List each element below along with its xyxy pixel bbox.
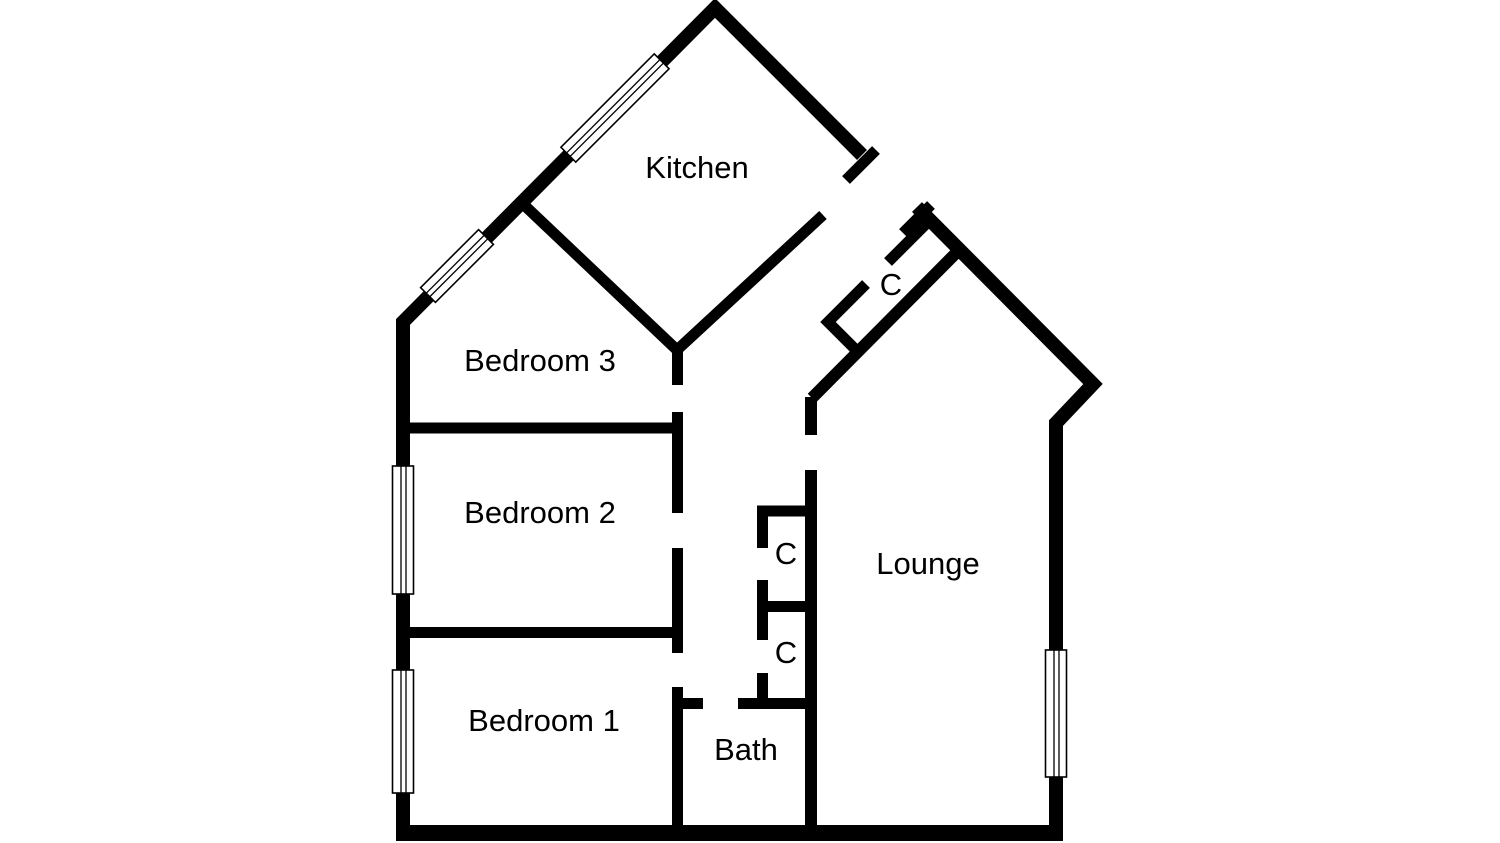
lounge-hall-walls [811,247,962,841]
room-label-lounge: Lounge [876,546,979,581]
room-label-bedroom-2: Bedroom 2 [464,495,616,530]
window-bedroom3-diagonal [421,230,494,303]
window-frame [1046,650,1067,777]
window-frame [393,670,414,793]
window-frame [421,230,494,303]
closet-label-entrance: C [880,267,902,302]
window-bedroom2-west [393,466,414,594]
closet-label-hall-upper: C [775,536,797,571]
closet-label-hall-lower: C [775,635,797,670]
room-label-bedroom-1: Bedroom 1 [468,703,620,738]
window-kitchen-diagonal [561,54,669,162]
window-lounge-east [1046,650,1067,777]
window-bedroom1-west [393,670,414,793]
room-label-bath: Bath [714,732,778,767]
room-label-kitchen: Kitchen [645,150,748,185]
floor-plan-drawing: Kitchen Bedroom 3 Bedroom 2 Bedroom 1 Ba… [0,0,1500,843]
window-frame [561,54,669,162]
window-frame [393,466,414,594]
floor-plan-page: Kitchen Bedroom 3 Bedroom 2 Bedroom 1 Ba… [0,0,1500,843]
room-label-bedroom-3: Bedroom 3 [464,343,616,378]
